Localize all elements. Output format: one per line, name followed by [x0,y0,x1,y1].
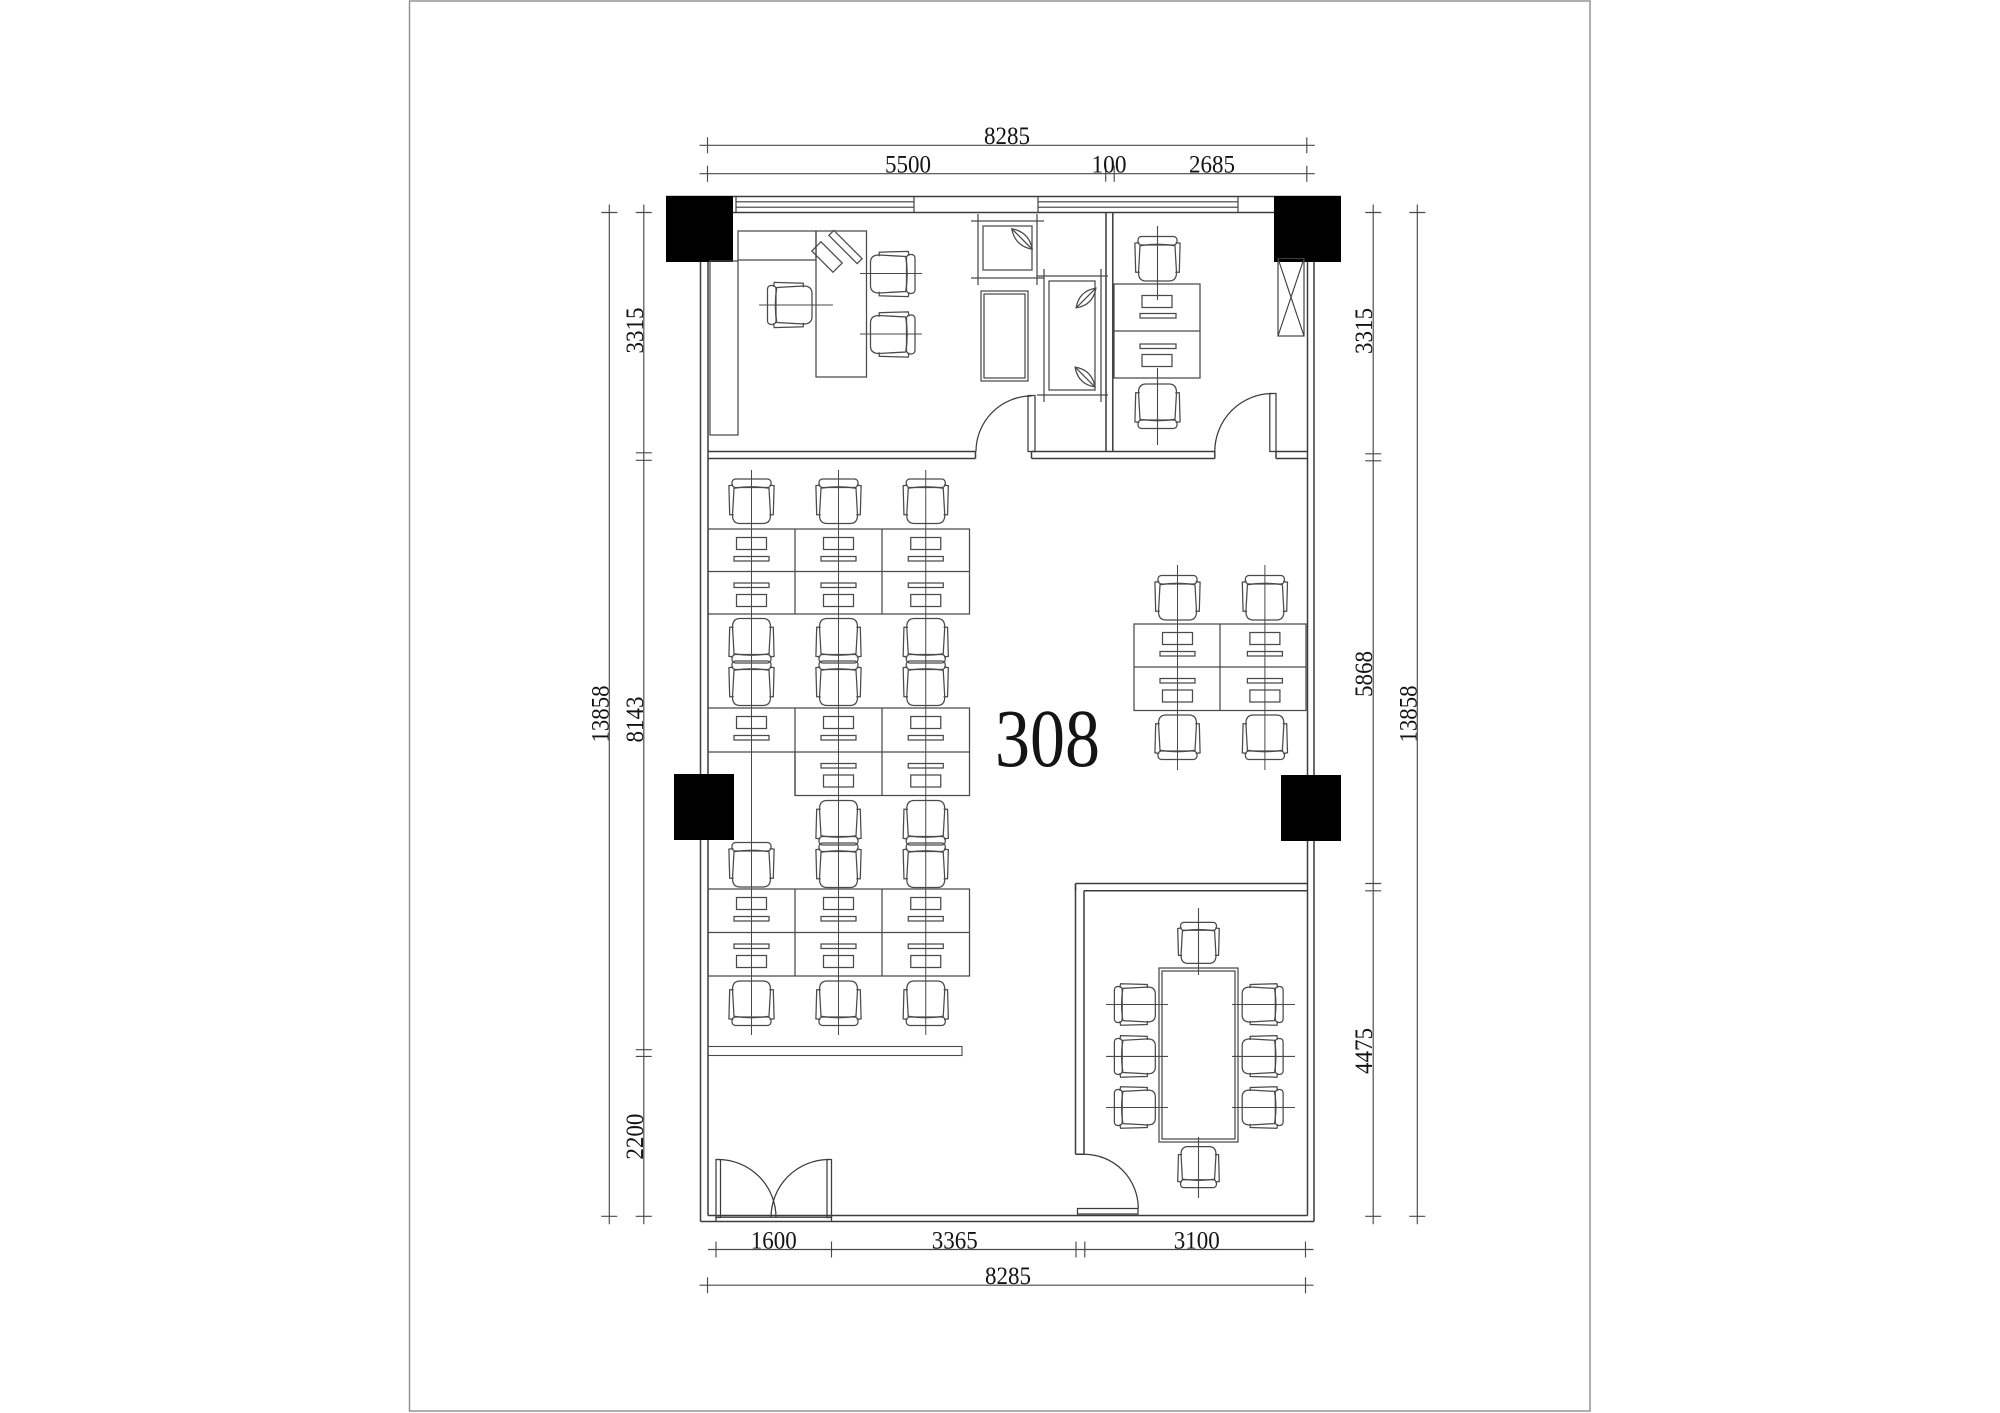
svg-text:1600: 1600 [751,1227,797,1254]
svg-text:5868: 5868 [1351,651,1378,697]
svg-text:8285: 8285 [985,1263,1031,1290]
svg-text:13858: 13858 [587,686,614,743]
svg-text:2685: 2685 [1189,152,1235,179]
svg-text:3315: 3315 [622,308,649,354]
svg-text:8285: 8285 [984,123,1030,150]
svg-text:8143: 8143 [622,697,649,743]
svg-text:308: 308 [995,692,1100,784]
svg-text:100: 100 [1092,152,1127,179]
svg-text:3315: 3315 [1351,308,1378,354]
svg-text:3365: 3365 [932,1227,978,1254]
svg-text:13858: 13858 [1395,686,1422,743]
svg-text:5500: 5500 [885,152,931,179]
svg-text:2200: 2200 [622,1114,649,1160]
svg-text:4475: 4475 [1351,1028,1378,1074]
svg-text:3100: 3100 [1174,1227,1220,1254]
